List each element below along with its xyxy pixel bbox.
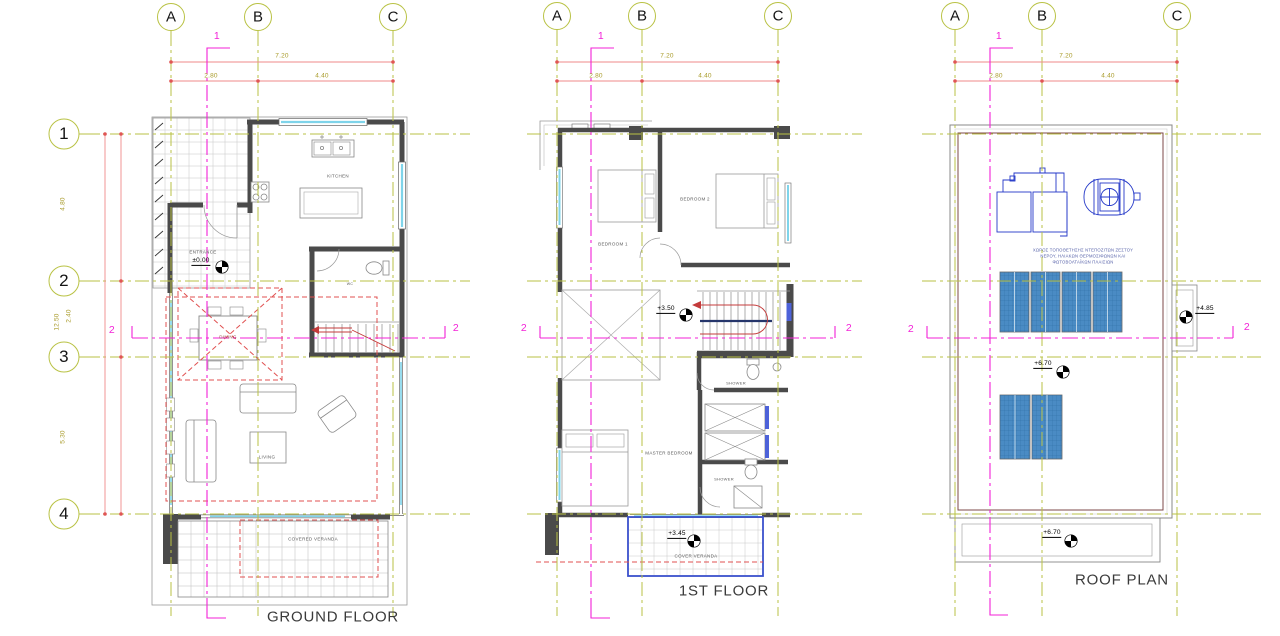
living-furniture xyxy=(186,384,358,482)
room-label-shower: SHOWER xyxy=(714,477,734,482)
grid-column-label: B xyxy=(1037,8,1047,25)
door-arc xyxy=(700,487,720,507)
level-annotation: +3.50 xyxy=(656,305,675,314)
plan-linework xyxy=(0,0,1280,636)
grid-column-label: A xyxy=(552,8,562,25)
level-annotation: +6.70 xyxy=(1033,360,1052,369)
dim-label: 2.80 xyxy=(589,73,602,80)
solar-heater-equipment xyxy=(997,168,1140,236)
dim-label: 5.30 xyxy=(60,430,67,443)
dim-label: 7.20 xyxy=(1059,53,1072,60)
room-label-bedroom1: BEDROOM 1 xyxy=(598,242,628,247)
door-arc xyxy=(640,238,660,258)
section-marker: 1 xyxy=(214,30,220,42)
first-stairs xyxy=(692,291,790,350)
grid-column-label: C xyxy=(773,8,784,25)
dim-label: 4.80 xyxy=(60,197,67,210)
level-annotation: ±0.00 xyxy=(191,257,210,266)
section-marker: 2 xyxy=(453,322,459,334)
level-annotation: +3.45 xyxy=(667,530,686,539)
dim-label: 7.20 xyxy=(275,53,288,60)
section-marker: 2 xyxy=(846,322,852,334)
roof-note-line: ΝΕΡΟΥ, ΗΛΙΑΚΩΝ ΘΕΡΜΟΣΙΦΩΝΩΝ ΚΑΙ xyxy=(1040,254,1125,259)
dim-label: 7.20 xyxy=(660,53,673,60)
room-label-kitchen: KITCHEN xyxy=(327,174,349,179)
room-label-master: MASTER BEDROOM xyxy=(645,451,692,456)
room-label-veranda: COVER VERANDA xyxy=(675,554,718,559)
dim-label: 2.40 xyxy=(66,309,73,322)
room-label-living: LIVING xyxy=(259,455,276,460)
grid-column-label: A xyxy=(950,8,960,25)
dim-label: 2.80 xyxy=(989,73,1002,80)
plan-title-first: 1ST FLOOR xyxy=(679,583,769,600)
section-marker: 2 xyxy=(908,323,914,335)
grid-column-label: C xyxy=(388,9,399,26)
dim-label: 4.40 xyxy=(698,73,711,80)
solar-panels xyxy=(1000,272,1122,459)
grid-column-label: B xyxy=(253,9,263,26)
level-annotation: +6.70 xyxy=(1042,529,1061,538)
roof-note-line: ΧΩΡΟΣ ΤΟΠΟΘΕΤΗΣΗΣ ΝΤΕΠΟΖΙΤΩΝ ΖΕΣΤΟΥ xyxy=(1033,248,1133,253)
grid-row-label: 1 xyxy=(59,124,69,144)
roof-plan xyxy=(950,125,1197,562)
section-marker: 2 xyxy=(521,322,527,334)
floor-plan-sheet: A B C A B C A B C 1 2 3 4 7.20 2.80 4.40… xyxy=(0,0,1280,636)
room-label-bedroom2: BEDROOM 2 xyxy=(680,197,710,202)
first-floor-plan xyxy=(540,121,792,576)
grid-column-label: B xyxy=(637,8,647,25)
level-annotation: +4.85 xyxy=(1195,305,1214,314)
dim-label: 12.50 xyxy=(54,313,61,330)
plan-title-roof: ROOF PLAN xyxy=(1075,572,1169,589)
section-marker: 2 xyxy=(109,324,115,336)
veranda-tiles xyxy=(178,521,388,597)
toilet xyxy=(366,262,382,274)
dim-label: 2.80 xyxy=(204,73,217,80)
room-label-shower: SHOWER xyxy=(726,381,746,386)
dim-label: 4.40 xyxy=(315,73,328,80)
section-marker: 1 xyxy=(598,30,604,42)
roof-note-line: ΦΩΤΟΒΟΛΤΑΪΚΩΝ ΠΛΑΙΣΙΩΝ xyxy=(1052,260,1113,265)
grid-row-label: 2 xyxy=(59,271,69,291)
grid-column-label: A xyxy=(166,9,176,26)
grid-row-label: 3 xyxy=(59,347,69,367)
grid-column-label: C xyxy=(1172,8,1183,25)
room-label-dining: DINING xyxy=(219,335,237,340)
section-marker: 1 xyxy=(996,30,1002,42)
void-opening xyxy=(562,290,660,380)
room-label-wc: WC xyxy=(347,282,353,286)
plan-title-ground: GROUND FLOOR xyxy=(267,609,399,626)
door-arc xyxy=(317,249,339,271)
dim-label: 4.40 xyxy=(1101,73,1114,80)
door-arc xyxy=(660,244,681,265)
section-marker: 2 xyxy=(1244,321,1250,333)
room-label-entrance: ENTRANCE xyxy=(189,250,216,255)
ground-floor-plan xyxy=(152,117,407,605)
wardrobes xyxy=(705,404,765,460)
door-arc xyxy=(204,205,237,238)
grid-row-label: 4 xyxy=(59,504,69,524)
room-label-veranda: COVERED VERANDA xyxy=(288,537,338,542)
